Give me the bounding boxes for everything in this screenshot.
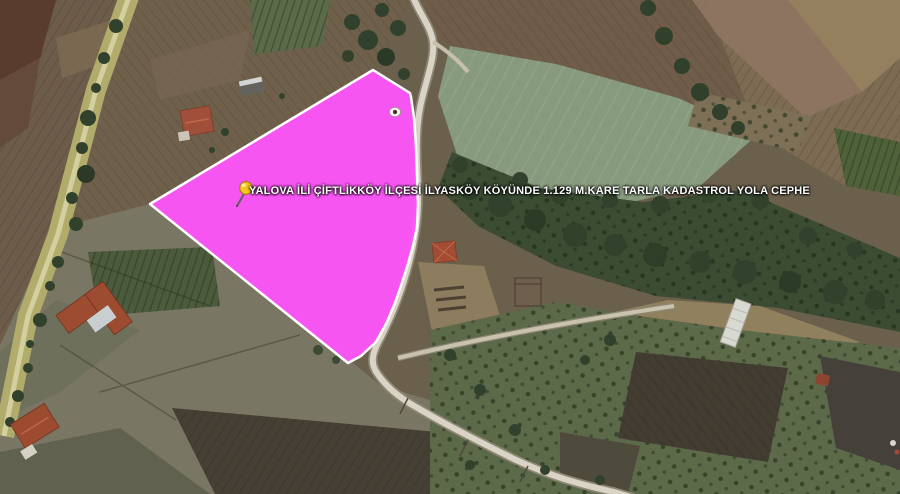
placemark-dot-icon[interactable] [389,107,400,116]
satellite-imagery[interactable] [0,0,900,494]
map-container: YALOVA İLİ ÇİFTLİKKÖY İLÇESİ İLYASKÖY KÖ… [0,0,900,494]
shed [515,278,541,306]
parcel-label: YALOVA İLİ ÇİFTLİKKÖY İLÇESİ İLYASKÖY KÖ… [249,185,810,197]
red-roof-house [432,241,457,263]
